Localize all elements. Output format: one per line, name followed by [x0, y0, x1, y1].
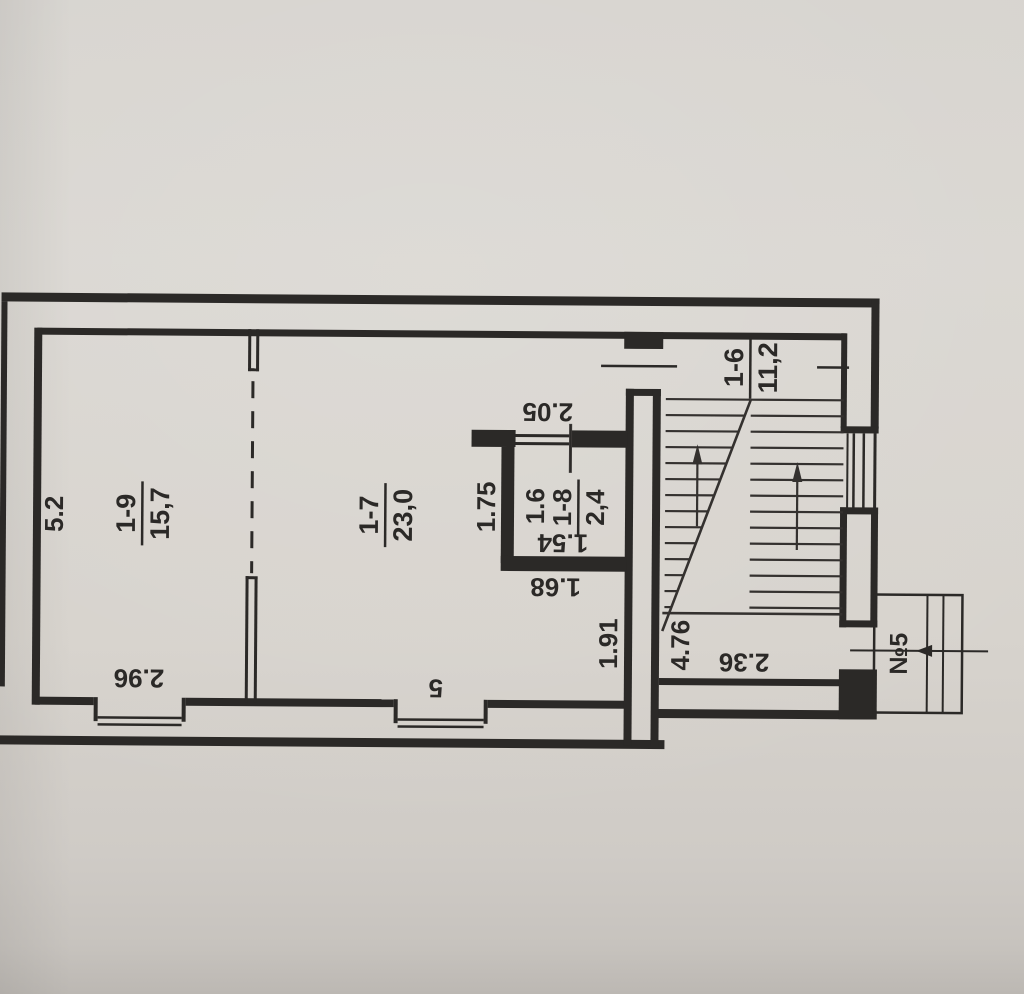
room-area: 11,2	[753, 342, 783, 393]
window-room-1-9	[94, 697, 186, 726]
partition-1-9-1-7	[245, 329, 260, 702]
entrance-number-label: №5	[885, 633, 913, 675]
stair-break-line	[662, 399, 751, 632]
room-label-1-8: 1-8 2,4	[547, 479, 610, 535]
room-label-1-9: 1-9 15,7	[111, 481, 175, 545]
dim-left-height: 5.2	[39, 496, 69, 532]
room-area: 2,4	[580, 489, 610, 526]
dim-closet-inner-width: 1.54	[537, 528, 588, 558]
dim-closet-inner-height: 1.6	[520, 488, 550, 524]
dim-closet-top-width: 2.05	[522, 397, 573, 427]
dim-stair-hall-height: 4.76	[665, 620, 695, 671]
room-labels: 1-9 15,7 1-7 23,0 1-8 2,4 1-6 11,2	[111, 332, 783, 550]
room-number: 1-8	[547, 488, 577, 526]
dim-room17-lower-height: 1.91	[593, 618, 623, 669]
room-label-1-6: 1-6 11,2	[719, 336, 783, 398]
room-label-1-7: 1-7 23,0	[354, 483, 418, 547]
room-number: 1-6	[719, 348, 749, 387]
floor-plan-canvas: 1-9 15,7 1-7 23,0 1-8 2,4 1-6 11,2 5.	[0, 0, 1024, 994]
dim-room19-width: 2.96	[113, 663, 164, 693]
room-number: 1-7	[354, 495, 384, 534]
window-stair-hall	[846, 433, 877, 509]
dim-closet-bottom-width: 1.68	[530, 572, 581, 602]
room-area: 23,0	[388, 489, 418, 542]
entrance-arrow	[850, 644, 988, 657]
dim-closet-outer-height: 1.75	[471, 481, 501, 532]
staircase	[662, 399, 844, 632]
room-number: 1-9	[111, 494, 141, 533]
stair-up-arrow-right	[792, 462, 803, 550]
room-area: 15,7	[145, 487, 175, 540]
dim-stair-hall-width: 2.36	[719, 647, 770, 677]
dim-room17-width: 5	[428, 673, 443, 703]
floor-plan: 1-9 15,7 1-7 23,0 1-8 2,4 1-6 11,2 5.	[0, 292, 991, 751]
photo-background: 1-9 15,7 1-7 23,0 1-8 2,4 1-6 11,2 5.	[0, 0, 1024, 994]
stair-up-arrow-left	[692, 444, 703, 526]
